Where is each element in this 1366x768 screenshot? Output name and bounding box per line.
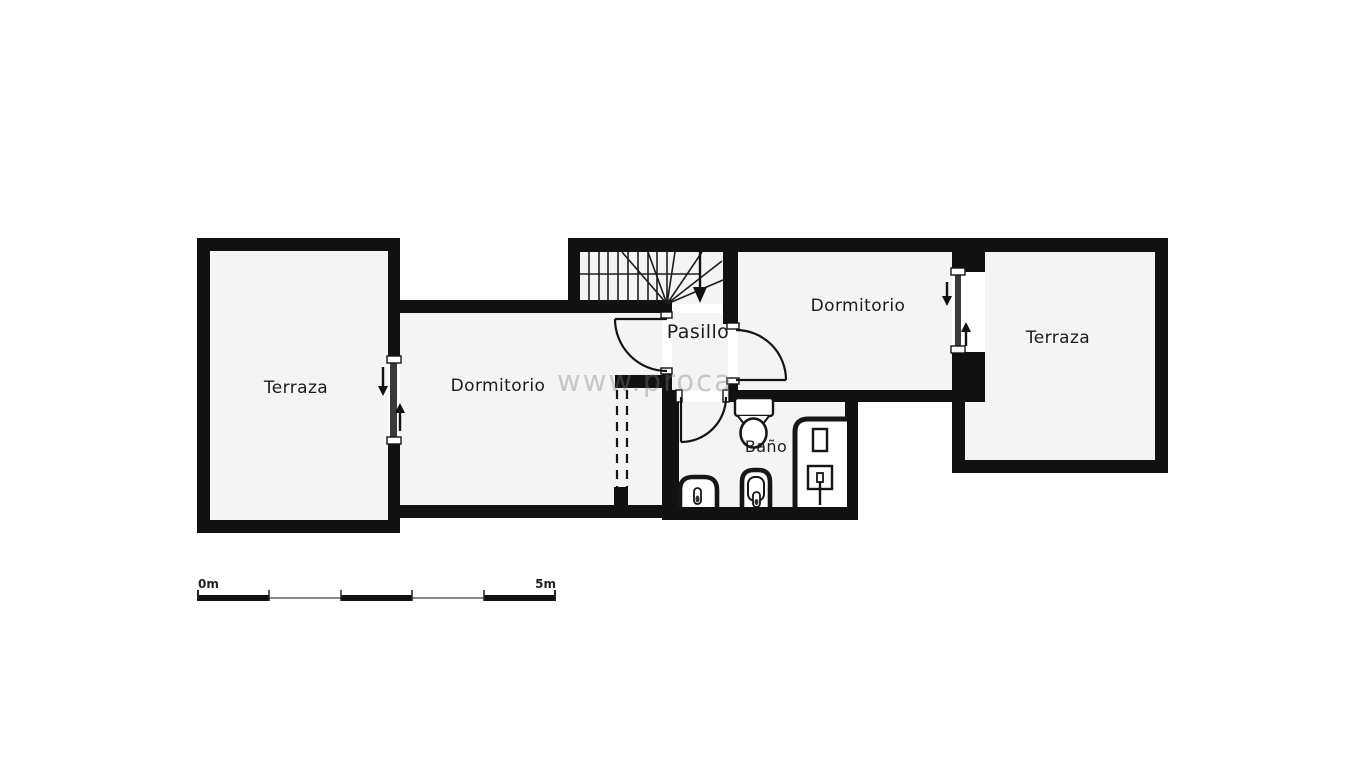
- shower: [795, 419, 847, 507]
- watermark-text: www.proca: [557, 364, 734, 398]
- dormitorio-right-label: Dormitorio: [811, 296, 906, 316]
- slide-up-arrow: [961, 322, 971, 346]
- bidet: [742, 470, 770, 507]
- bano-label: Baño: [745, 437, 787, 456]
- terraza-right-label: Terraza: [1025, 328, 1090, 348]
- scale-end-label: 5m: [535, 577, 556, 591]
- washbasin: [680, 477, 717, 507]
- floor-plan-svg: Terraza Dormitorio Pasillo Dormitorio Te…: [0, 0, 1366, 768]
- dormitorio-left-label: Dormitorio: [451, 376, 546, 396]
- floor-plan-page: Terraza Dormitorio Pasillo Dormitorio Te…: [0, 0, 1366, 768]
- pasillo-label: Pasillo: [667, 321, 729, 343]
- terraza-left-label: Terraza: [263, 378, 328, 398]
- dormitorio-left-floor: [400, 313, 662, 505]
- dormitorio-right-floor: [738, 252, 952, 392]
- scale-start-label: 0m: [198, 577, 219, 591]
- terraza-right-floor: [965, 252, 1155, 460]
- scale-bar: 0m 5m: [198, 577, 556, 601]
